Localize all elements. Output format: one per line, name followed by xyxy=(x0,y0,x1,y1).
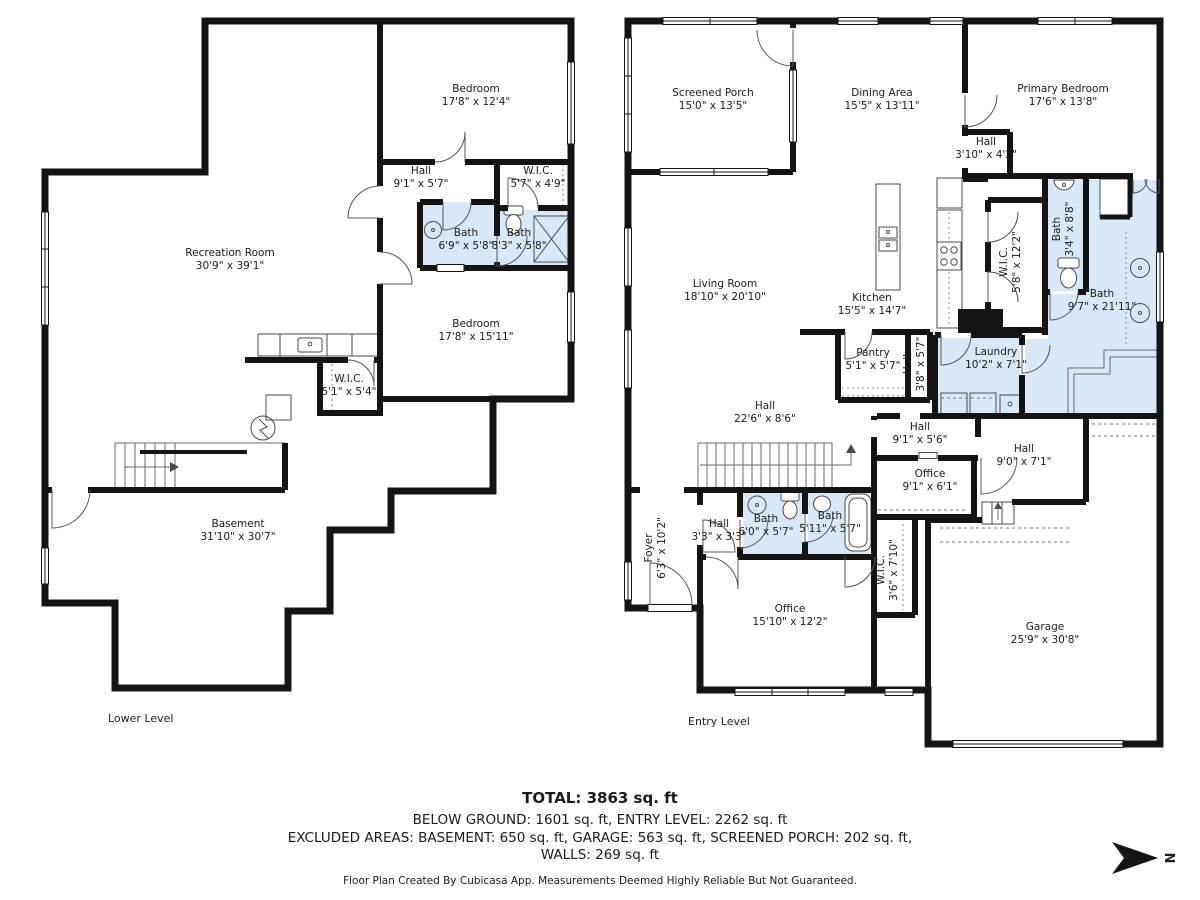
room-dims: 9'1" x 5'6" xyxy=(892,434,947,446)
room-label: Basement xyxy=(211,518,264,530)
room-dims: 5'8" x 12'2" xyxy=(1011,231,1023,293)
north-arrow-icon xyxy=(1112,842,1158,874)
room-label: Living Room xyxy=(693,278,757,290)
room-label: W.I.C. xyxy=(998,247,1010,277)
room-label: W.I.C. xyxy=(875,555,887,585)
room-label: Office xyxy=(775,603,806,615)
window xyxy=(42,212,49,325)
room-label: Bath xyxy=(507,227,531,239)
room-label: W.I.C. xyxy=(523,165,553,177)
room-label: Hall xyxy=(755,400,775,412)
window xyxy=(625,330,632,388)
room-dims: 5'1" x 5'4" xyxy=(321,386,376,398)
room-label: Bath xyxy=(818,510,842,522)
lower-room-labels: Bedroom 17'8" x 12'4" Hall 9'1" x 5'7" W… xyxy=(185,83,565,543)
walls-area-text: WALLS: 269 sq. ft xyxy=(541,847,659,863)
window xyxy=(568,62,575,144)
room-label: Pantry xyxy=(856,347,890,359)
room-dims: 15'5" x 13'11" xyxy=(844,100,919,112)
room-label: Bedroom xyxy=(452,83,500,95)
room-label: Hall xyxy=(1014,443,1034,455)
room-label: Hall xyxy=(910,421,930,433)
compass: N xyxy=(1112,842,1176,874)
floorplan-page: Bedroom 17'8" x 12'4" Hall 9'1" x 5'7" W… xyxy=(0,0,1200,900)
room-label: Bedroom xyxy=(452,318,500,330)
room-label: Hall xyxy=(709,518,729,530)
window xyxy=(42,548,49,584)
entry-level-plan: Screened Porch 15'0" x 13'5" Dining Area… xyxy=(625,18,1164,748)
room-dims: 6'9" x 5'8" xyxy=(438,240,493,252)
room-label: Office xyxy=(915,468,946,480)
north-label: N xyxy=(1161,853,1176,864)
room-label: W.I.C. xyxy=(334,373,364,385)
room-label: Kitchen xyxy=(852,292,891,304)
room-dims: 15'0" x 13'5" xyxy=(679,100,747,112)
room-dims: 3'6" x 7'10" xyxy=(888,539,900,601)
room-label: Recreation Room xyxy=(185,247,274,259)
room-dims: 9'7" x 21'11" xyxy=(1068,301,1136,313)
window xyxy=(625,228,632,286)
room-label: Bath xyxy=(1090,288,1114,300)
room-label: Laundry xyxy=(975,346,1018,358)
room-dims: 5'1" x 5'7" xyxy=(845,360,900,372)
room-label: Hall xyxy=(411,165,431,177)
window xyxy=(625,38,632,152)
disclaimer-text: Floor Plan Created By Cubicasa App. Meas… xyxy=(343,875,857,887)
total-area-text: TOTAL: 3863 sq. ft xyxy=(522,789,678,807)
window xyxy=(735,689,845,696)
window xyxy=(790,70,797,142)
room-label: Dining Area xyxy=(851,87,912,99)
room-dims: 3'8" x 5'7" xyxy=(915,336,927,391)
room-dims: 8'3" x 5'8" xyxy=(491,240,546,252)
window xyxy=(568,292,575,342)
window xyxy=(625,562,632,600)
window xyxy=(885,689,913,696)
room-label: Hall xyxy=(976,136,996,148)
room-dims: 9'0" x 7'1" xyxy=(996,456,1051,468)
room-dims: 10'2" x 7'1" xyxy=(965,359,1027,371)
room-dims: 17'8" x 15'11" xyxy=(438,331,513,343)
room-dims: 25'9" x 30'8" xyxy=(1011,634,1079,646)
room-label: Primary Bedroom xyxy=(1017,83,1108,95)
room-dims: 15'5" x 14'7" xyxy=(838,305,906,317)
front-door-gap xyxy=(648,605,692,612)
window xyxy=(660,169,768,176)
lower-level-caption: Lower Level xyxy=(108,712,173,725)
room-dims: 17'8" x 12'4" xyxy=(442,96,510,108)
room-dims: 15'10" x 12'2" xyxy=(752,616,827,628)
room-dims: 3'10" x 4'2" xyxy=(955,149,1017,161)
room-dims: 5'11" x 5'7" xyxy=(799,523,861,535)
room-label: Bath xyxy=(1051,217,1063,241)
window xyxy=(838,18,878,25)
level-areas-text: BELOW GROUND: 1601 sq. ft, ENTRY LEVEL: … xyxy=(413,812,788,828)
room-dims: 9'1" x 5'7" xyxy=(393,178,448,190)
lower-level-plan: Bedroom 17'8" x 12'4" Hall 9'1" x 5'7" W… xyxy=(42,21,575,725)
window xyxy=(663,18,757,25)
floorplan-canvas: Bedroom 17'8" x 12'4" Hall 9'1" x 5'7" W… xyxy=(0,0,1200,900)
window xyxy=(1157,252,1164,322)
room-dims: 22'6" x 8'6" xyxy=(734,413,796,425)
room-dims: 5'7" x 4'9" xyxy=(510,178,565,190)
room-label: Garage xyxy=(1026,621,1064,633)
garage-door xyxy=(953,741,1123,748)
room-label: Screened Porch xyxy=(672,87,753,99)
area-summary: TOTAL: 3863 sq. ft BELOW GROUND: 1601 sq… xyxy=(288,789,912,887)
room-dims: 9'1" x 6'1" xyxy=(902,481,957,493)
lower-walls xyxy=(45,21,571,688)
room-dims: 3'4" x 8'8" xyxy=(1064,201,1076,256)
window xyxy=(930,18,963,25)
room-label: Bath xyxy=(754,513,778,525)
room-dims: 30'9" x 39'1" xyxy=(196,260,264,272)
room-dims: 31'10" x 30'7" xyxy=(200,531,275,543)
excluded-areas-text: EXCLUDED AREAS: BASEMENT: 650 sq. ft, GA… xyxy=(288,830,912,846)
room-label: Bath xyxy=(454,227,478,239)
room-dims: 18'10" x 20'10" xyxy=(684,291,766,303)
room-dims: 6'0" x 5'7" xyxy=(738,526,793,538)
room-dims: 17'6" x 13'8" xyxy=(1029,96,1097,108)
room-label: Foyer xyxy=(643,533,655,563)
entry-level-caption: Entry Level xyxy=(688,715,750,728)
room-dims: 6'3" x 10'2" xyxy=(656,517,668,579)
window xyxy=(1038,18,1112,25)
room-label: Hall xyxy=(902,354,914,374)
